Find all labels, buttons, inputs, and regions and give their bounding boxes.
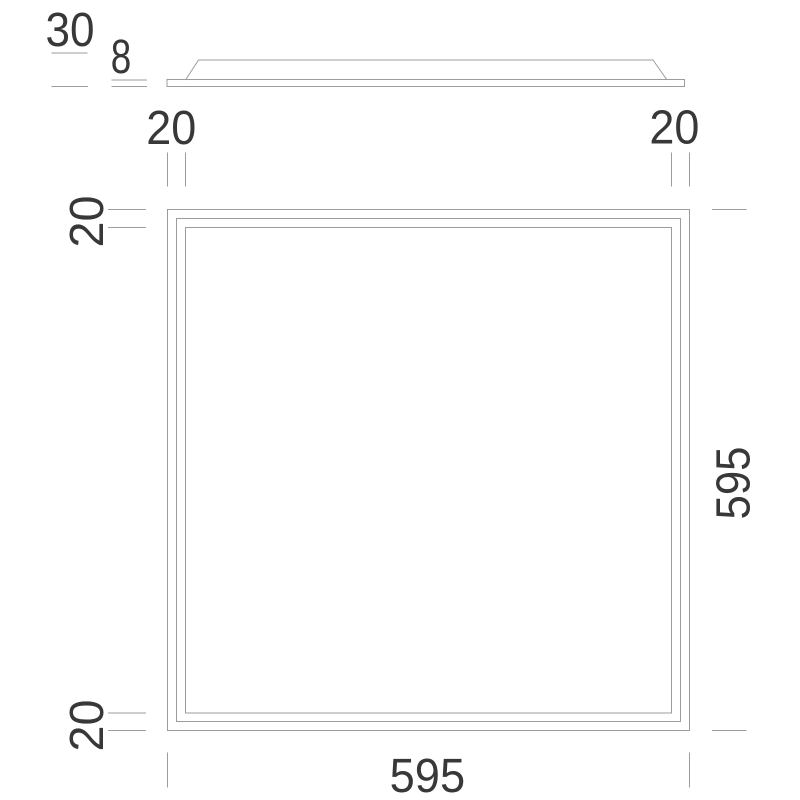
svg-text:595: 595 — [708, 447, 761, 520]
svg-text:20: 20 — [146, 102, 196, 155]
svg-text:595: 595 — [390, 750, 466, 800]
svg-text:30: 30 — [46, 4, 95, 57]
svg-text:20: 20 — [61, 700, 114, 752]
svg-text:20: 20 — [61, 196, 114, 248]
svg-text:8: 8 — [111, 31, 132, 84]
svg-text:20: 20 — [649, 102, 699, 155]
